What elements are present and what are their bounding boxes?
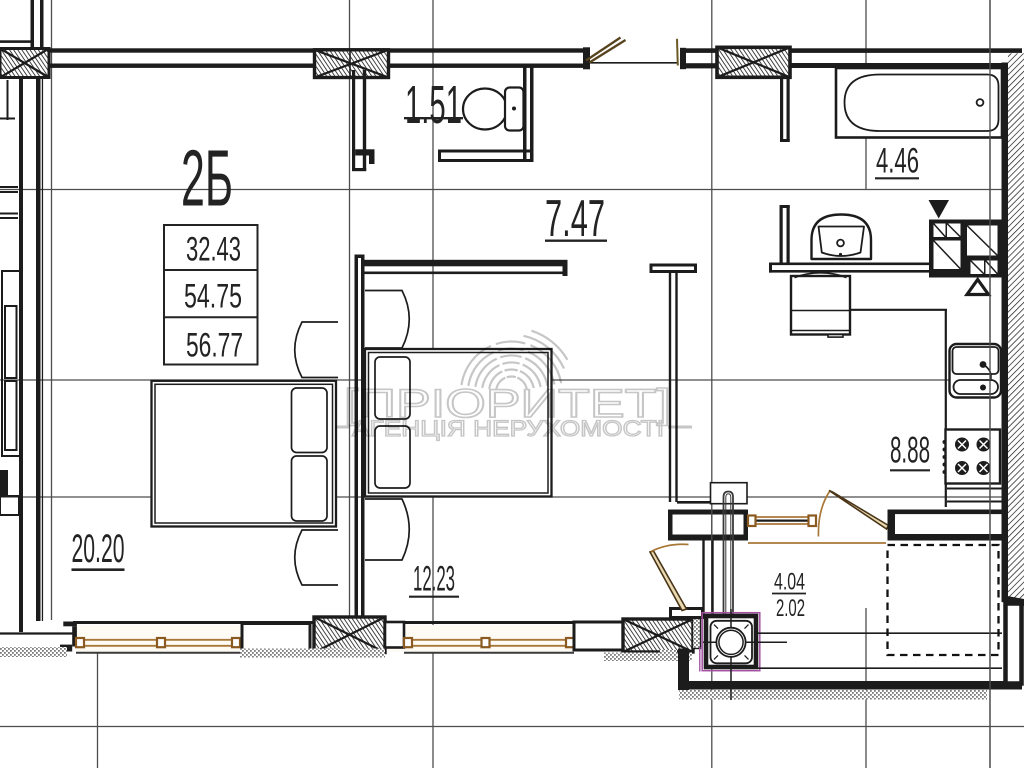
svg-text:1.51: 1.51 [405, 75, 462, 135]
svg-text:32.43: 32.43 [186, 231, 241, 269]
svg-text:2Б: 2Б [181, 134, 233, 223]
svg-text:2.02: 2.02 [776, 595, 805, 622]
svg-text:8.88: 8.88 [890, 430, 930, 471]
svg-text:12.23: 12.23 [413, 560, 455, 599]
svg-text:4.46: 4.46 [876, 142, 919, 181]
svg-text:4.04: 4.04 [774, 569, 805, 596]
svg-text:7.47: 7.47 [545, 190, 605, 248]
svg-text:20.20: 20.20 [72, 527, 125, 571]
svg-text:АГЕНЦІЯ НЕРУХОМОСТІ: АГЕНЦІЯ НЕРУХОМОСТІ [352, 416, 664, 441]
svg-text:56.77: 56.77 [186, 327, 243, 365]
svg-text:54.75: 54.75 [184, 278, 242, 316]
